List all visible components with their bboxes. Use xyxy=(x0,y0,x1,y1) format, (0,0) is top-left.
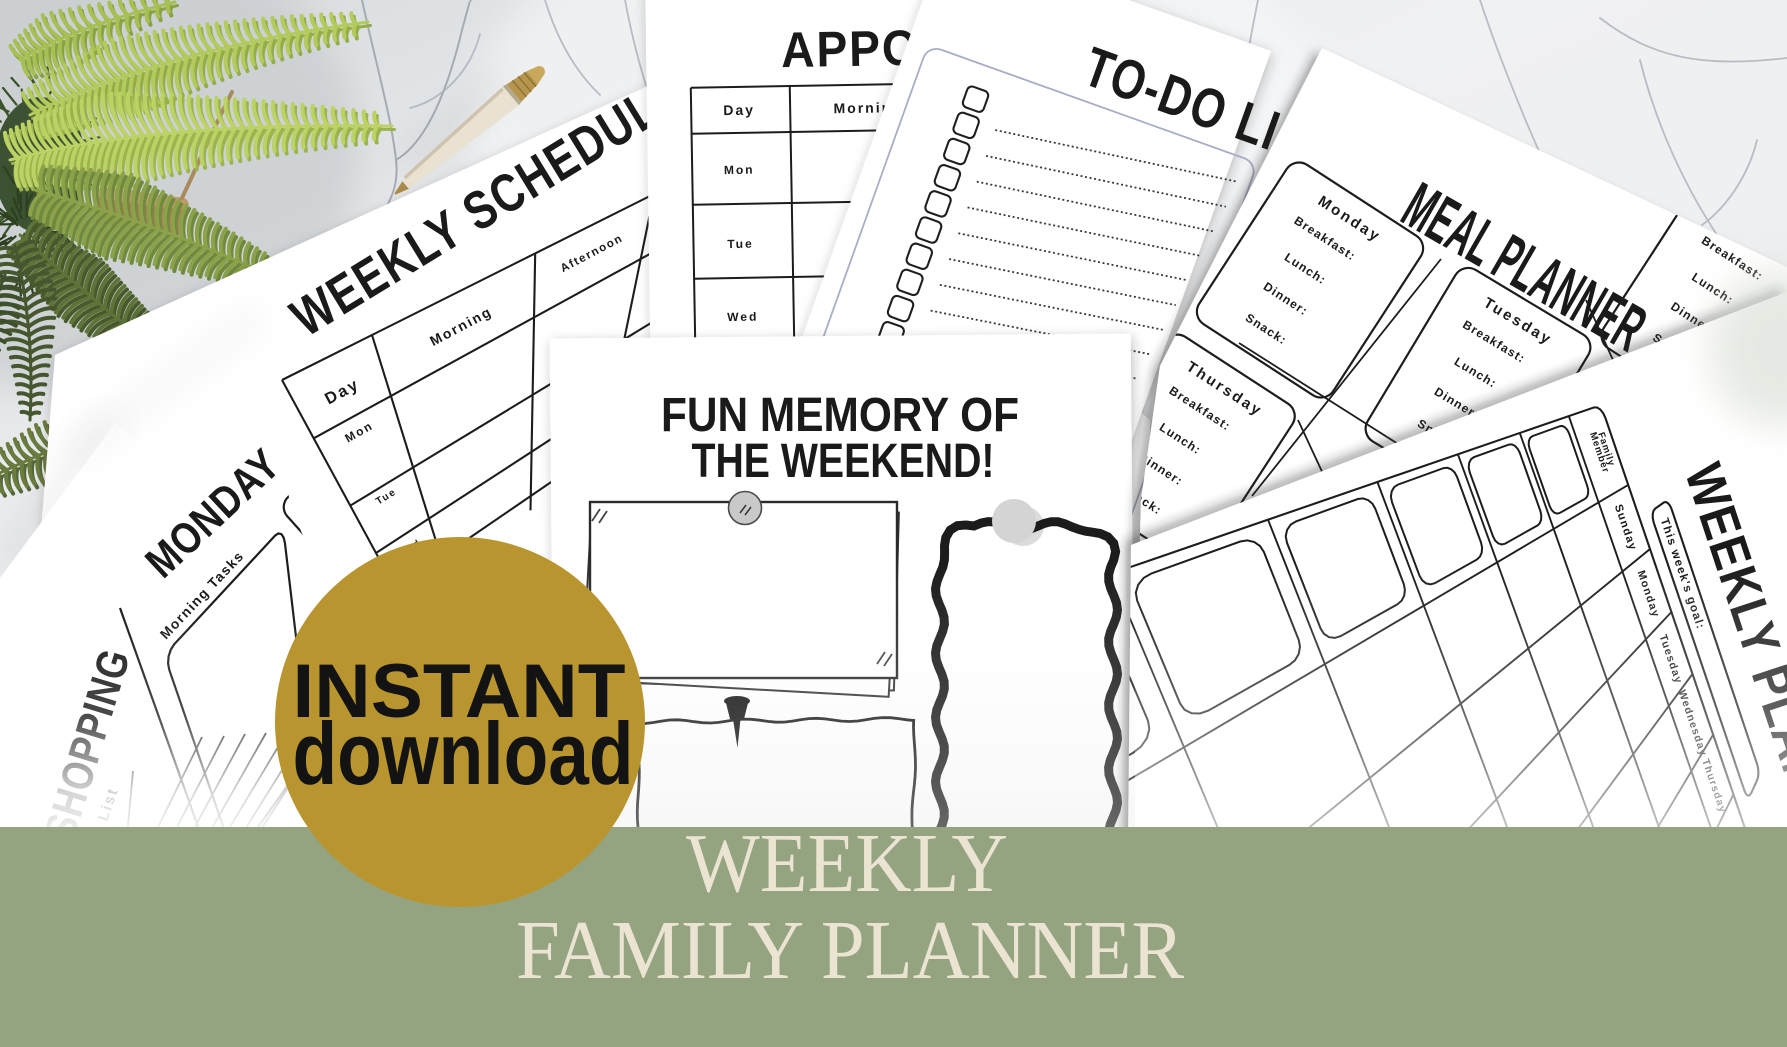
svg-text:Tue: Tue xyxy=(727,237,754,251)
svg-text:FAMILY PLANNER: FAMILY PLANNER xyxy=(516,904,1184,997)
svg-text:Day: Day xyxy=(723,102,755,119)
svg-text:Wed: Wed xyxy=(727,310,758,325)
svg-text:download: download xyxy=(293,704,634,803)
svg-text:THE WEEKEND!: THE WEEKEND! xyxy=(692,435,995,488)
svg-text:Mon: Mon xyxy=(724,163,755,178)
svg-text:WEEKLY: WEEKLY xyxy=(686,817,1008,910)
